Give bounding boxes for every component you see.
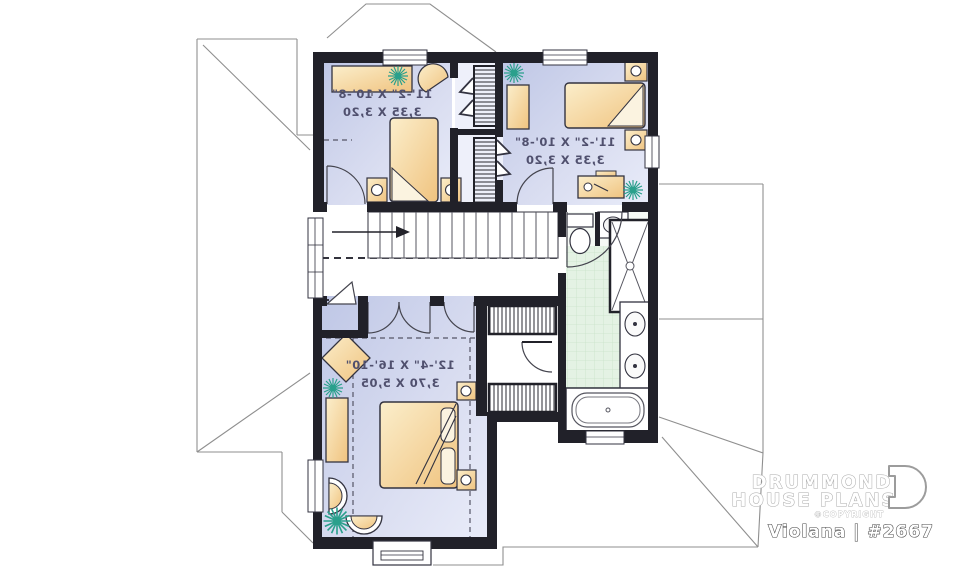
wall-stub — [595, 212, 600, 246]
brand-logo-icon — [889, 466, 926, 508]
window — [308, 218, 323, 298]
window — [645, 136, 659, 168]
plant-icon — [323, 378, 343, 398]
toilet-bowl — [570, 229, 590, 254]
drain — [633, 322, 637, 326]
plant-icon — [504, 63, 524, 83]
bedroom-top-right-imperial: 11'-2" X 10'-8" — [515, 135, 616, 149]
brand-line2: HOUSE PLANS — [731, 490, 896, 511]
pillow — [441, 408, 455, 442]
bay-window — [373, 541, 431, 565]
closet-rod — [474, 66, 496, 126]
bedroom-top-right-metric: 3,35 X 3,20 — [525, 153, 604, 167]
window — [308, 460, 323, 512]
bedroom-top-left-imperial: 11'-2" X 10'-8" — [332, 87, 433, 101]
floor-plan-svg: 11'-2" X 10'-8" 3,35 X 3,20 11'-2" X 10'… — [0, 0, 960, 569]
dresser — [507, 85, 529, 129]
shower-drain — [626, 262, 634, 270]
closet-rod — [489, 306, 556, 334]
bedroom-top-left-metric: 3,35 X 3,20 — [342, 105, 421, 119]
window — [543, 50, 587, 65]
plan-name-label: Violana | #2667 — [768, 522, 934, 542]
window — [586, 431, 624, 444]
lamp — [461, 386, 471, 396]
dresser — [326, 398, 348, 462]
drain — [633, 364, 637, 368]
lamp — [461, 475, 471, 485]
plant-icon — [623, 180, 643, 200]
closet-rod — [474, 138, 496, 206]
desk-item — [584, 183, 592, 191]
closet-rod — [489, 384, 556, 412]
lamp — [372, 185, 383, 196]
bathtub — [566, 388, 650, 432]
lamp — [631, 135, 641, 145]
master-bedroom-metric: 3,70 X 5,05 — [360, 376, 439, 390]
lamp — [631, 66, 641, 76]
master-bedroom-imperial: 12'-4" X 16'-10" — [345, 358, 454, 372]
brand-copyright: ©COPYRIGHT — [814, 510, 884, 519]
toilet-tank — [567, 214, 593, 227]
window — [383, 50, 427, 65]
pillow — [441, 448, 455, 484]
plant-icon — [388, 66, 408, 86]
floor-plan-page: 11'-2" X 10'-8" 3,35 X 3,20 11'-2" X 10'… — [0, 0, 960, 569]
